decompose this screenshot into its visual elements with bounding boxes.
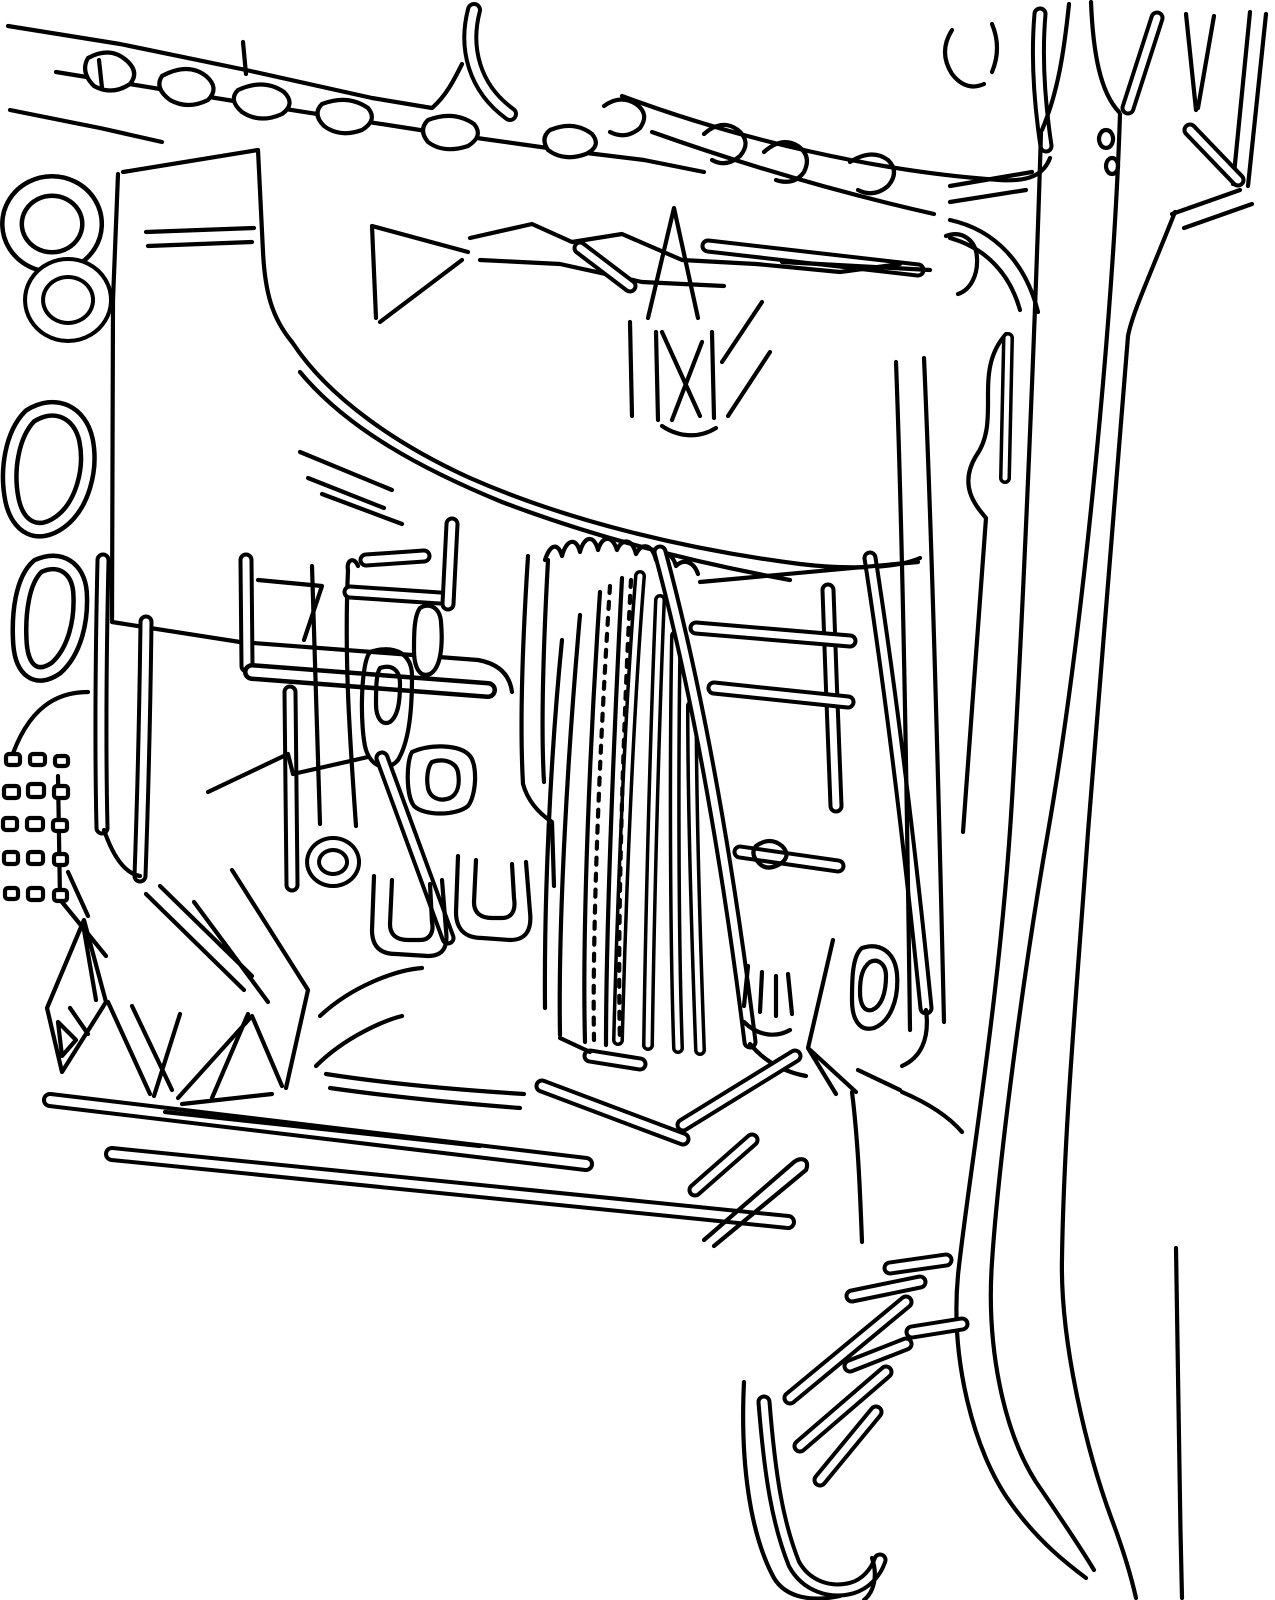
- building-block: [28, 852, 43, 864]
- shore-blob-1: [85, 52, 134, 90]
- yard-east-link: [858, 1070, 962, 1132]
- yard-strip-west-2: [347, 560, 358, 826]
- wiggle-line: [963, 334, 1006, 832]
- building-block: [28, 888, 43, 900]
- shore-third-line: [10, 110, 162, 142]
- road-bundle-frags: [300, 452, 402, 524]
- junction-branch-n: [1186, 14, 1214, 110]
- highway-outer-line: [1062, 212, 1175, 1598]
- shore-blob-5: [423, 116, 478, 149]
- building-block: [3, 818, 17, 830]
- teardrop: [414, 606, 442, 675]
- pre-dart-capsule-1-core: [683, 1056, 795, 1125]
- shore-tick-1: [243, 42, 246, 74]
- junction-diagonal: [1172, 190, 1252, 228]
- block-inner-road: [146, 228, 254, 246]
- building-block: [54, 854, 67, 865]
- shore-curl: [945, 24, 997, 86]
- road-vertical-3-core: [246, 560, 247, 666]
- shore-blob-4: [317, 100, 371, 133]
- building-block: [54, 786, 68, 798]
- junction-island-1: [1099, 130, 1113, 148]
- junction-ne-capsule-core: [1190, 130, 1238, 180]
- building-block: [5, 888, 18, 899]
- highway-west-edge: [956, 132, 1086, 1578]
- shore-blob-3: [234, 84, 290, 118]
- shore-blob-6: [544, 126, 595, 157]
- edge-map-page: [0, 0, 1275, 1600]
- junction-stem-east: [1091, 2, 1119, 112]
- road-vertical-1-core: [101, 560, 103, 828]
- junction-branch-e: [1233, 12, 1266, 186]
- road-vertical-4-core: [290, 692, 292, 885]
- triangle-open: [372, 226, 468, 322]
- shore-squiggle-4: [604, 99, 644, 135]
- hill-cluster: [630, 208, 770, 435]
- chain-capsule-core: [580, 248, 630, 286]
- building-block: [55, 756, 68, 766]
- yard-line-east-1: [896, 362, 910, 1030]
- arc-pair: [316, 968, 422, 1066]
- shore-tick-2: [99, 60, 102, 88]
- building-block: [30, 754, 45, 765]
- low-lines: [326, 1074, 524, 1108]
- wedge-extra: [165, 1112, 480, 1146]
- yard-top-capsule-core: [366, 556, 424, 560]
- building-block: [4, 852, 18, 864]
- pre-dart-capsule-2-core: [695, 1140, 752, 1190]
- building-block: [4, 786, 19, 798]
- junction-branch-ne-core: [1128, 18, 1157, 108]
- wedge-long-2-core: [112, 1154, 788, 1222]
- building-block: [54, 890, 67, 901]
- building-block: [6, 754, 20, 765]
- slash-strokes: [68, 872, 268, 1098]
- box-loop-inner: [427, 760, 459, 799]
- claw-blob-inner: [860, 961, 886, 1011]
- road-bundle-1: [292, 342, 920, 567]
- building-block: [27, 818, 43, 830]
- shore-lower-line: [56, 72, 704, 172]
- building-block: [28, 784, 44, 797]
- highway-outer-segment: [1176, 1248, 1182, 1598]
- track-line-2: [560, 615, 580, 1035]
- pond-arc: [10, 692, 88, 762]
- needle-east-core: [1005, 338, 1008, 478]
- low-long-capsule-core: [542, 1086, 683, 1139]
- road-bundle-2: [300, 372, 790, 580]
- yard-line-east-2: [924, 358, 944, 1022]
- shore-blob-2: [159, 69, 213, 105]
- platform-rail-east-core: [870, 558, 926, 1008]
- box-loop-outer: [408, 746, 475, 813]
- building-block: [53, 820, 67, 831]
- u-shape-east: [456, 856, 530, 940]
- edge-map-canvas: [0, 0, 1275, 1600]
- yard-up-strip-core: [448, 524, 452, 604]
